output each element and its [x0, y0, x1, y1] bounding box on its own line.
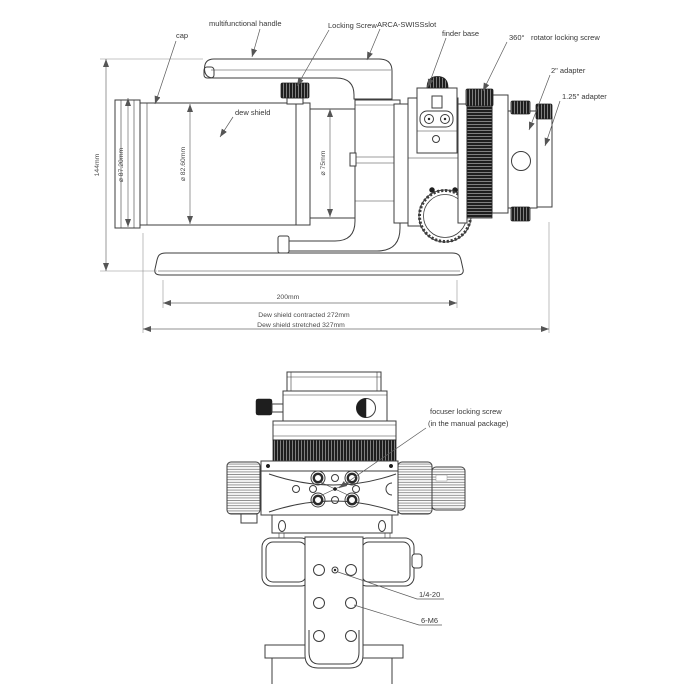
- dew-shield: [140, 103, 310, 225]
- rotator-and-adapters: [458, 89, 552, 223]
- dovetail-plate-front: [305, 537, 363, 668]
- label-focuser-screw-line1: focuser locking screw: [430, 407, 502, 416]
- rotator-ring: [467, 105, 492, 218]
- rotator-flange-front: [273, 421, 396, 440]
- focuser-housing-front: [261, 471, 398, 515]
- label-dew-shield: dew shield: [235, 108, 270, 117]
- dim-cap-diameter: ⌀ 87.20mm: [118, 148, 125, 183]
- label-rotator-deg: 360°: [509, 33, 525, 42]
- adapter-125-inch: [536, 104, 552, 207]
- finder-thumbscrew: [427, 77, 448, 89]
- dim-shield-diameter: ⌀ 82.60mm: [180, 147, 187, 182]
- focuser-band-front: [261, 461, 398, 471]
- focuser-locking-screw-hole: [333, 487, 336, 490]
- adapter-2-inch: [508, 101, 537, 221]
- label-locking-screw: Locking Screw: [328, 21, 377, 30]
- label-focuser-screw-line2: (in the manual package): [428, 419, 509, 428]
- label-arca-slot: ARCA-SWISSslot: [377, 20, 437, 29]
- dim-tube-diameter: ⌀ 75mm: [320, 150, 327, 175]
- rotator-locking-screw: [466, 89, 493, 106]
- label-adapter-2in: 2" adapter: [551, 66, 586, 75]
- focuser-base-front: [272, 515, 392, 539]
- rotator-ring-front: [273, 440, 396, 461]
- label-adapter-125in: 1.25" adapter: [562, 92, 607, 101]
- tube-end-flange: [394, 104, 408, 223]
- rotator-housing-front: [256, 391, 387, 421]
- fine-focus-knob: [432, 467, 465, 510]
- label-finder-base: finder base: [442, 29, 479, 38]
- clamp-screw-tip: [412, 554, 422, 568]
- drawtube-front: [287, 372, 381, 391]
- dim-height: 144mm: [94, 153, 101, 176]
- side-view: 144mm ⌀ 87.20mm ⌀ 82.60mm ⌀ 75mm 200mm D…: [94, 19, 607, 333]
- finder-base: [417, 88, 457, 153]
- telescope-technical-diagram: 144mm ⌀ 87.20mm ⌀ 82.60mm ⌀ 75mm 200mm D…: [0, 0, 700, 700]
- dim-stretched: Dew shield stretched 327mm: [257, 322, 345, 329]
- housing-thumbscrew: [256, 399, 272, 415]
- dew-shield-locking-screw: [281, 83, 309, 104]
- front-view: focuser locking screw (in the manual pac…: [227, 372, 509, 684]
- label-thread-quarter: 1/4-20: [419, 590, 440, 599]
- label-rotator-screw: rotator locking screw: [531, 33, 600, 42]
- coarse-knob-left: [227, 462, 260, 514]
- dim-plate-length: 200mm: [277, 294, 300, 301]
- coarse-knob-right: [398, 462, 432, 514]
- diagram-canvas: 144mm ⌀ 87.20mm ⌀ 82.60mm ⌀ 75mm 200mm D…: [0, 0, 700, 700]
- label-cap: cap: [176, 31, 188, 40]
- rotator-flange: [492, 95, 508, 213]
- dim-contracted: Dew shield contracted 272mm: [258, 312, 350, 319]
- label-thread-m6: 6-M6: [421, 616, 438, 625]
- dovetail-plate-side: [155, 253, 464, 275]
- label-handle: multifunctional handle: [209, 19, 282, 28]
